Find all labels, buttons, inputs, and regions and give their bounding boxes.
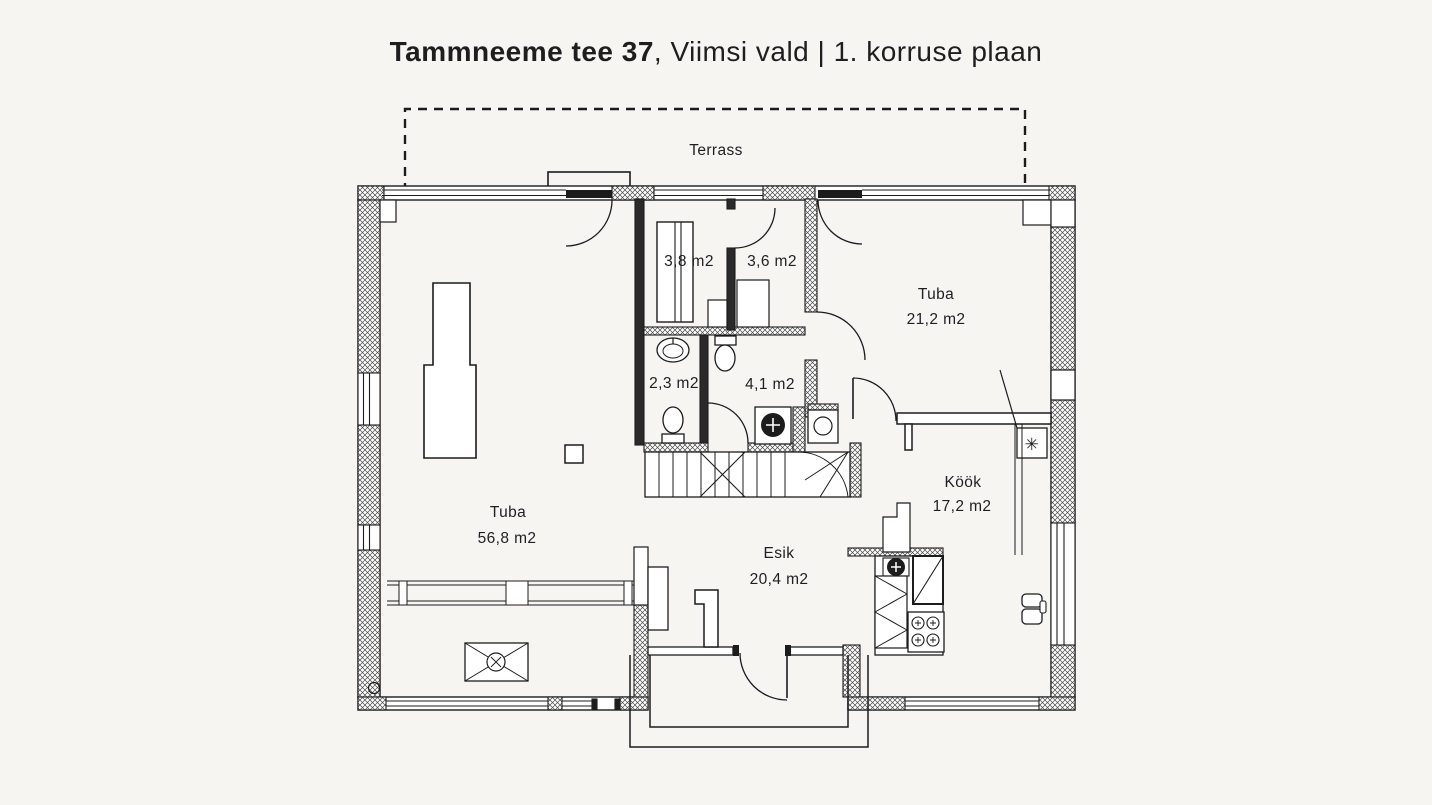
column <box>565 445 583 463</box>
title-subtitle: , Viimsi vald | 1. korruse plaan <box>654 36 1042 67</box>
porch-steps <box>630 655 868 747</box>
toilet-icon-wc <box>662 407 684 443</box>
window-left-2 <box>358 525 380 550</box>
wardrobe-icon <box>657 222 693 322</box>
dish-cabinet-icon <box>875 576 907 648</box>
kitchen-sink-icon <box>883 558 909 576</box>
sink-icon <box>657 338 689 362</box>
label-hall-area: 20,4 m2 <box>750 571 809 588</box>
laundry-sink-icon <box>808 410 838 443</box>
shower-tray <box>737 280 769 327</box>
hallway-closet-wall <box>695 590 718 647</box>
chimney-mass <box>424 283 476 458</box>
floor-plan-page: Tammneeme tee 37, Viimsi vald | 1. korru… <box>0 0 1432 800</box>
label-living-area: 56,8 m2 <box>478 530 537 547</box>
label-kitchen-area: 17,2 m2 <box>933 498 992 515</box>
label-living-name: Tuba <box>490 504 526 521</box>
fireplace-icon <box>465 643 528 681</box>
terrace-step <box>548 172 630 187</box>
title-address: Tammneeme tee 37 <box>390 36 654 67</box>
window-right <box>1051 523 1075 645</box>
fridge-icon <box>913 556 943 604</box>
entrance <box>630 645 868 747</box>
terrace-label: Terrass <box>689 142 743 159</box>
label-bath-area: 4,1 m2 <box>745 376 795 393</box>
svg-text:✳: ✳ <box>1025 435 1040 454</box>
floor-plan-drawing: Terrass <box>0 0 1432 800</box>
kitchen-pantry <box>883 503 910 552</box>
entrance-door <box>740 653 787 700</box>
cabinet-closet <box>708 300 727 327</box>
terrace-outline: Terrass <box>405 109 1025 192</box>
door-bedroom-hall <box>817 312 865 360</box>
washing-machine-icon <box>755 407 791 444</box>
stove-icon <box>908 612 944 652</box>
label-bedroom-area: 21,2 m2 <box>907 311 966 328</box>
hallway-cabinet <box>648 567 668 630</box>
label-shower-area: 3,6 m2 <box>747 253 797 270</box>
label-hall-name: Esik <box>764 545 795 562</box>
door-bedroom-hallway <box>853 378 896 421</box>
glass-partition <box>387 581 634 605</box>
label-kitchen-name: Köök <box>945 474 982 491</box>
door-shower-room <box>735 208 775 248</box>
chair-icon <box>1022 594 1046 624</box>
toilet-icon-bathroom <box>715 336 736 371</box>
flue-symbol: ✳ <box>1000 370 1047 555</box>
label-wc-area: 2,3 m2 <box>649 375 699 392</box>
window-left-1 <box>358 373 380 425</box>
living-room-features <box>369 283 635 694</box>
label-bedroom-name: Tuba <box>918 286 954 303</box>
page-title: Tammneeme tee 37, Viimsi vald | 1. korru… <box>0 36 1432 68</box>
door-bathroom <box>708 403 748 443</box>
label-closet-area: 3,8 m2 <box>664 253 714 270</box>
staircase <box>645 452 850 497</box>
